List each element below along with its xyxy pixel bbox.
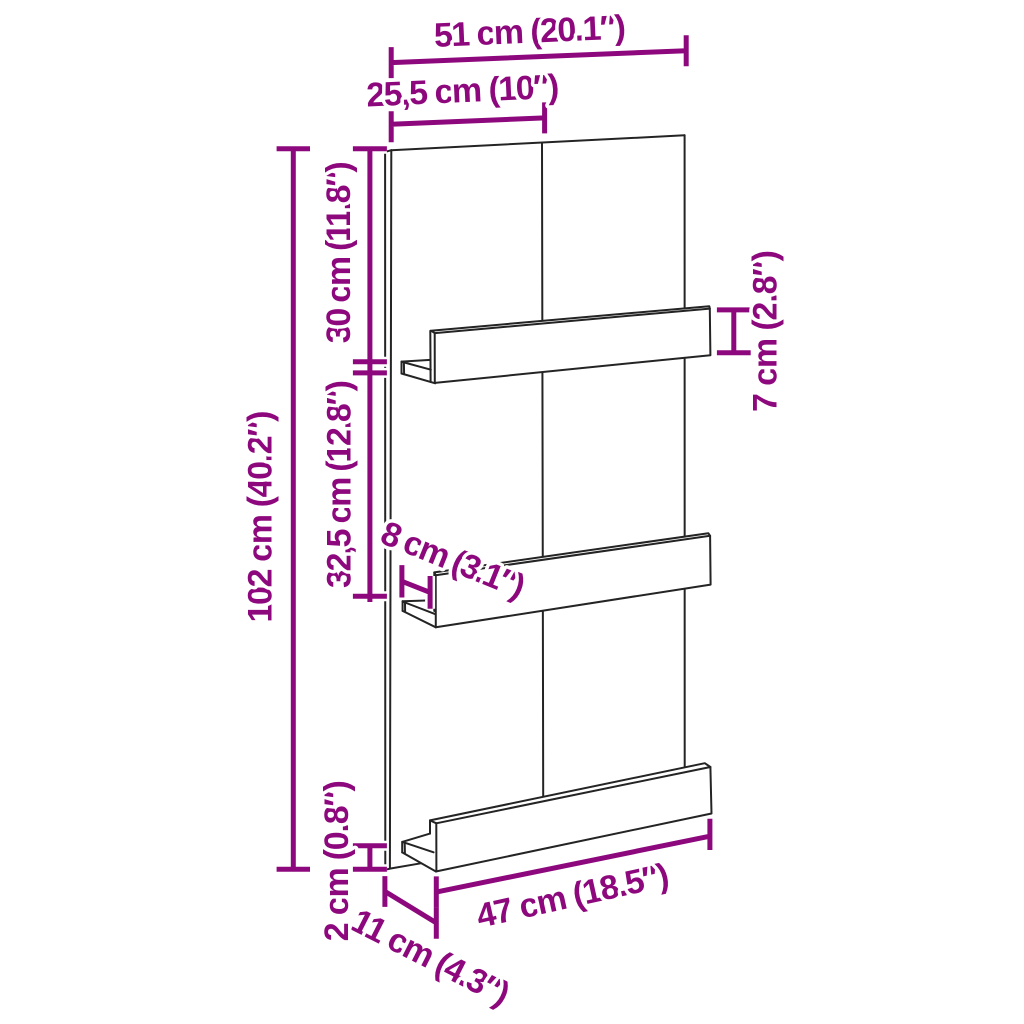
svg-text:2 cm (0.8″): 2 cm (0.8″): [318, 780, 356, 941]
svg-text:32,5 cm (12.8″): 32,5 cm (12.8″): [321, 380, 359, 588]
svg-text:30 cm (11.8″): 30 cm (11.8″): [320, 161, 358, 343]
svg-text:102 cm (40.2″): 102 cm (40.2″): [242, 411, 280, 623]
svg-text:7 cm (2.8″): 7 cm (2.8″): [747, 250, 785, 412]
